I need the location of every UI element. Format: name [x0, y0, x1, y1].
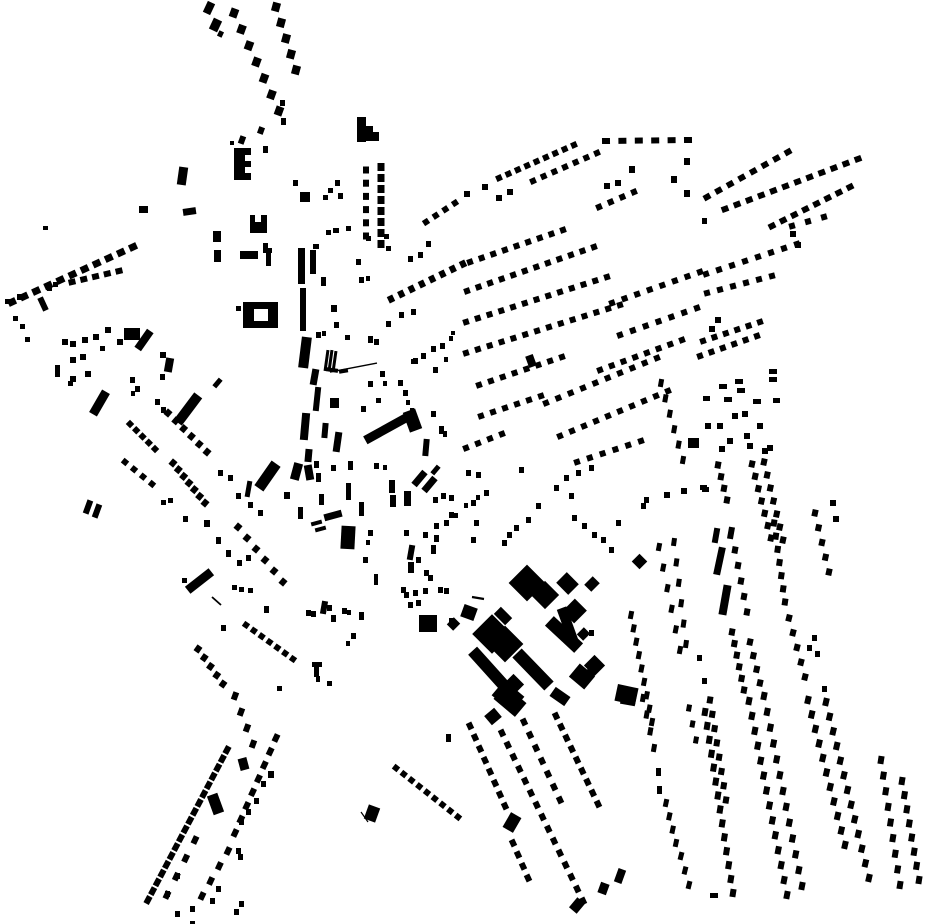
building-row-dash — [590, 243, 598, 251]
building-row-dash — [219, 679, 228, 688]
lower-center-cluster — [327, 605, 332, 611]
building-row-dash — [653, 354, 661, 362]
left-cluster — [135, 386, 140, 392]
bottom-fan-blobs — [210, 898, 215, 904]
building-row-dash — [604, 412, 612, 420]
building-row-dash — [638, 664, 644, 673]
building-row-dash — [825, 568, 832, 576]
building-row-dash — [760, 692, 767, 701]
top-left-marks — [177, 166, 188, 185]
building-row-dash — [686, 704, 692, 712]
building-row-dash — [671, 538, 677, 547]
e-building — [245, 167, 252, 173]
building-row-dash — [200, 498, 209, 507]
main-street-mid — [403, 408, 422, 432]
building-row-dash — [706, 696, 713, 704]
building-row-dash — [222, 745, 231, 755]
main-street-north — [335, 180, 340, 186]
building-row-dash — [138, 432, 146, 440]
left-cluster — [62, 339, 68, 345]
lower-center-cluster — [290, 462, 303, 481]
building-row-dash — [748, 711, 755, 720]
building-row-dash — [567, 251, 575, 259]
building-row-dash — [7, 297, 17, 307]
building-row-dash — [397, 290, 405, 299]
main-street-mid — [444, 357, 448, 362]
building-row-dash — [767, 484, 774, 492]
building-row-dash — [546, 357, 554, 365]
lower-center-cluster — [346, 641, 350, 646]
bottom-fan-blobs — [268, 771, 274, 778]
building-row-dash — [637, 437, 645, 445]
building-row-dash — [751, 726, 758, 735]
building-row-dash — [780, 585, 787, 593]
building-row-dash — [773, 510, 780, 518]
lower-center-cluster — [404, 491, 411, 506]
building-row-dash — [509, 753, 517, 762]
building-row-dash — [558, 353, 566, 361]
building-row-dash — [591, 379, 599, 387]
building-row-dash — [128, 242, 138, 252]
building-row-dash — [415, 782, 423, 790]
building-row-dash — [716, 753, 723, 761]
mid-right-scatter — [753, 399, 761, 404]
building-row-dash — [826, 712, 834, 721]
main-street-north — [338, 193, 343, 199]
building-row-dash — [750, 652, 757, 660]
right-column-bars — [807, 645, 812, 651]
mid-right-scatter — [717, 423, 723, 429]
lower-center-cluster — [441, 493, 446, 499]
cluster-surroundings — [582, 523, 587, 529]
left-cluster — [105, 327, 111, 333]
central-dark-cluster — [484, 708, 502, 726]
main-street-north — [300, 288, 306, 331]
building-row-dash — [823, 768, 831, 777]
lower-center-cluster — [331, 465, 336, 471]
building-row-dash — [651, 744, 657, 753]
courtyard-building — [254, 309, 268, 321]
building-row-dash — [628, 364, 636, 372]
building-row-dash — [544, 292, 552, 300]
building-row-dash — [181, 853, 190, 863]
building-row-dash — [538, 757, 546, 766]
building-row-dash — [742, 279, 749, 286]
building-row-dash — [711, 333, 719, 341]
right-column-bars — [697, 655, 702, 661]
left-fan-marks — [226, 550, 231, 557]
bottom-fan-blobs — [238, 854, 243, 860]
bottom-fan-blobs — [239, 901, 244, 907]
building-row-dash — [646, 286, 654, 294]
building-row-dash — [618, 193, 626, 201]
building-row-dash — [668, 313, 676, 321]
mid-right-scatter — [742, 411, 748, 417]
building-row-dash — [378, 229, 385, 237]
building-row-dash — [675, 440, 681, 449]
mid-right-scatter — [724, 397, 732, 402]
building-row-dash — [242, 621, 250, 629]
lower-center-cluster — [258, 510, 263, 516]
building-row-dash — [815, 524, 822, 532]
building-row-dash — [486, 279, 494, 287]
main-street-north — [313, 244, 319, 249]
building-row-dash — [714, 461, 721, 469]
building-row-dash — [489, 408, 497, 416]
bottom-fan-blobs — [216, 886, 221, 892]
building-row-dash — [204, 780, 213, 790]
top-left-marks — [238, 135, 246, 145]
main-street-north — [331, 305, 337, 312]
building-row-dash — [880, 771, 887, 780]
building-row-dash — [432, 212, 440, 220]
building-row-dash — [167, 851, 176, 861]
building-row-dash — [819, 753, 827, 762]
building-row-dash — [834, 188, 843, 196]
building-row-dash — [250, 626, 258, 634]
bottom-fan-blobs — [238, 757, 250, 771]
ne-fan-singles — [709, 326, 715, 332]
building-row-dash — [521, 299, 529, 307]
building-footprint-map — [0, 0, 930, 924]
thin-wall-line — [330, 363, 377, 372]
building-row-dash — [471, 733, 479, 742]
building-row-dash — [754, 741, 761, 750]
main-street-mid — [418, 252, 423, 258]
building-row-dash — [454, 813, 462, 821]
building-row-dash — [756, 679, 763, 687]
lower-center-cluster — [342, 608, 347, 614]
building-row-dash — [748, 460, 755, 468]
lower-center-cluster — [314, 461, 319, 468]
building-row-dash — [812, 724, 820, 733]
building-row-dash — [730, 340, 738, 348]
building-row-dash — [755, 276, 762, 283]
building-row-dash — [363, 219, 369, 226]
main-street-mid — [383, 381, 387, 386]
cluster-surroundings — [519, 467, 524, 473]
cluster-surroundings — [476, 472, 481, 478]
lower-center-cluster — [248, 502, 253, 508]
building-row-dash — [742, 336, 750, 344]
building-row-dash — [568, 745, 576, 754]
building-row-dash — [772, 831, 779, 840]
thin-wall-line — [472, 597, 484, 599]
building-row-dash — [157, 869, 166, 879]
building-row-dash — [854, 829, 862, 838]
building-row-dash — [582, 154, 590, 162]
main-street-mid — [431, 411, 436, 417]
building-row-dash — [509, 271, 517, 279]
building-row-dash — [826, 782, 834, 791]
building-row-dash — [701, 708, 708, 717]
building-row-dash — [206, 662, 215, 671]
building-row-dash — [854, 155, 863, 163]
building-row-dash — [143, 895, 152, 905]
building-row-dash — [725, 861, 732, 870]
building-row-dash — [790, 211, 799, 219]
right-column-bars — [812, 635, 817, 641]
top-left-marks — [230, 141, 234, 145]
building-row-dash — [618, 138, 626, 144]
building-row-dash — [793, 643, 801, 651]
building-row-dash — [822, 697, 830, 706]
building-row-dash — [702, 193, 711, 202]
building-row-dash — [776, 559, 783, 567]
building-row-dash — [721, 205, 730, 213]
lower-center-cluster — [351, 633, 356, 639]
building-row-dash — [513, 400, 521, 408]
building-row-dash — [174, 465, 183, 474]
top-left-marks — [209, 18, 222, 33]
lower-center-cluster — [363, 557, 368, 563]
building-row-dash — [418, 280, 426, 289]
building-row-dash — [206, 876, 215, 886]
building-row-dash — [523, 162, 531, 170]
building-row-dash — [620, 358, 628, 366]
building-row-dash — [524, 874, 532, 883]
left-cluster — [117, 339, 123, 345]
central-dark-cluster — [577, 627, 590, 640]
lower-center-cluster — [348, 461, 353, 470]
lower-center-cluster — [407, 545, 416, 561]
central-dark-cluster — [460, 604, 478, 621]
building-row-dash — [289, 655, 297, 663]
main-street-north — [326, 230, 331, 235]
building-row-dash — [745, 322, 753, 330]
building-row-dash — [538, 813, 546, 822]
building-row-dash — [808, 710, 816, 719]
cluster-surroundings — [656, 768, 661, 776]
building-row-dash — [729, 283, 736, 290]
building-row-dash — [847, 800, 855, 809]
building-row-dash — [462, 444, 470, 452]
building-row-dash — [171, 842, 180, 852]
building-row-dash — [496, 790, 504, 799]
building-row-dash — [407, 776, 415, 784]
building-row-dash — [733, 651, 740, 659]
building-row-dash — [746, 638, 753, 646]
building-row-dash — [198, 891, 207, 901]
lower-center-cluster — [438, 587, 443, 593]
left-cluster — [100, 346, 105, 351]
main-street-mid — [449, 336, 453, 341]
building-row-dash — [561, 145, 569, 153]
building-row-dash — [257, 632, 265, 640]
left-fan-marks — [228, 475, 233, 481]
main-street-mid — [298, 337, 312, 369]
building-row-dash — [474, 439, 482, 447]
building-row-dash — [561, 163, 569, 171]
top-left-marks — [183, 207, 197, 216]
building-row-dash — [770, 497, 777, 505]
building-row-dash — [862, 859, 870, 868]
main-street-mid — [422, 439, 429, 456]
building-row-dash — [67, 270, 77, 280]
building-row-dash — [556, 255, 564, 263]
building-row-dash — [378, 240, 385, 248]
building-row-dash — [392, 764, 400, 772]
building-row-dash — [714, 791, 721, 800]
building-row-dash — [774, 545, 781, 553]
cluster-surroundings — [569, 493, 574, 499]
building-row-dash — [266, 747, 275, 757]
ne-fan-singles — [615, 180, 621, 186]
building-row-dash — [636, 651, 642, 660]
building-row-dash — [145, 439, 153, 447]
upper-left-scatter — [20, 324, 25, 329]
building-row-dash — [446, 807, 454, 815]
main-street-north — [263, 248, 272, 253]
building-row-dash — [684, 137, 692, 143]
building-row-dash — [655, 318, 663, 326]
bottom-fan-blobs — [175, 911, 180, 917]
building-row-dash — [271, 2, 281, 13]
building-row-dash — [766, 801, 773, 810]
main-street-north — [300, 192, 310, 202]
building-row-dash — [593, 149, 601, 157]
building-row-dash — [498, 338, 506, 346]
building-row-dash — [115, 267, 123, 274]
building-row-dash — [187, 432, 196, 441]
main-street-mid — [359, 277, 364, 283]
building-row-dash — [801, 205, 810, 213]
building-row-dash — [498, 430, 506, 438]
left-cluster — [212, 378, 222, 389]
right-column-bars — [713, 547, 726, 576]
cluster-surroundings — [526, 517, 531, 523]
building-row-dash — [544, 825, 552, 834]
building-row-dash — [260, 760, 269, 770]
building-row-dash — [764, 522, 771, 530]
lower-center-cluster — [423, 588, 428, 594]
building-row-dash — [811, 509, 818, 517]
main-street-north — [334, 322, 339, 328]
building-row-dash — [557, 320, 565, 328]
building-row-dash — [581, 312, 589, 320]
ne-fan-singles — [715, 317, 721, 323]
building-row-dash — [524, 238, 532, 246]
building-row-dash — [673, 558, 679, 567]
building-row-dash — [693, 304, 701, 312]
building-row-dash — [580, 422, 588, 430]
building-row-dash — [179, 424, 188, 433]
right-column-bars — [712, 528, 721, 544]
building-row-dash — [378, 207, 385, 215]
building-row-dash — [721, 833, 728, 842]
building-row-dash — [683, 640, 689, 649]
right-column-bars — [727, 527, 735, 540]
building-row-dash — [801, 673, 809, 681]
building-row-dash — [889, 834, 896, 843]
building-row-dash — [781, 182, 790, 190]
building-row-dash — [628, 611, 634, 620]
building-row-dash — [567, 389, 575, 397]
building-row-dash — [680, 309, 688, 317]
e-building — [234, 148, 251, 180]
building-row-dash — [474, 314, 482, 322]
building-row-dash — [462, 318, 470, 326]
building-row-dash — [148, 480, 156, 488]
building-row-dash — [712, 777, 719, 786]
building-row-dash — [91, 273, 99, 280]
cluster-surroundings — [471, 537, 476, 543]
building-row-dash — [176, 833, 185, 843]
main-street-mid — [313, 387, 321, 411]
building-row-dash — [544, 259, 552, 267]
building-row-dash — [276, 17, 286, 28]
building-row-dash — [532, 263, 540, 271]
cluster-surroundings — [464, 503, 468, 508]
building-row-dash — [195, 440, 204, 449]
cluster-surroundings — [657, 786, 662, 794]
main-street-mid — [426, 241, 431, 247]
building-row-dash — [612, 446, 620, 454]
building-row-dash — [894, 865, 901, 874]
building-row-dash — [777, 861, 784, 870]
building-row-dash — [269, 566, 278, 575]
main-street-mid — [421, 353, 426, 359]
building-row-dash — [486, 311, 494, 319]
building-row-dash — [363, 206, 369, 213]
building-row-dash — [677, 646, 683, 655]
building-row-dash — [722, 796, 729, 804]
main-street-mid — [368, 381, 373, 387]
building-row-dash — [769, 187, 778, 195]
building-row-dash — [718, 768, 725, 776]
building-row-dash — [757, 191, 766, 199]
left-fan-marks — [221, 625, 226, 631]
main-street-mid — [431, 346, 436, 352]
left-fan-marks — [92, 503, 102, 518]
lower-center-cluster — [430, 465, 440, 476]
building-row-dash — [710, 763, 717, 772]
building-row-dash — [734, 562, 741, 570]
building-row-dash — [633, 290, 641, 298]
building-row-dash — [545, 323, 553, 331]
building-row-dash — [387, 295, 395, 304]
building-row-dash — [592, 417, 600, 425]
left-fan-marks — [216, 537, 221, 544]
building-row-dash — [195, 492, 204, 501]
building-row-dash — [151, 445, 159, 453]
building-row-dash — [728, 262, 736, 270]
building-row-dash — [678, 599, 684, 608]
building-row-dash — [363, 180, 369, 187]
building-row-dash — [837, 826, 845, 835]
building-row-dash — [885, 802, 892, 811]
main-street-mid — [333, 432, 343, 453]
left-cluster — [70, 341, 76, 347]
building-row-dash — [818, 538, 825, 546]
building-row-dash — [540, 172, 548, 180]
central-dark-cluster — [620, 691, 637, 706]
building-row-dash — [31, 286, 41, 296]
main-street-mid — [454, 513, 458, 518]
building-row-dash — [738, 674, 745, 682]
building-row-dash — [229, 7, 240, 18]
left-cluster — [93, 334, 99, 340]
left-cluster — [80, 354, 86, 360]
right-column-bars — [702, 678, 707, 684]
cluster-surroundings — [471, 500, 476, 506]
building-row-dash — [551, 149, 559, 157]
lower-center-cluster — [346, 483, 351, 500]
building-row-dash — [521, 331, 529, 339]
building-row-dash — [829, 727, 837, 736]
bottom-fan-blobs — [207, 793, 224, 816]
building-row-dash — [655, 345, 663, 353]
